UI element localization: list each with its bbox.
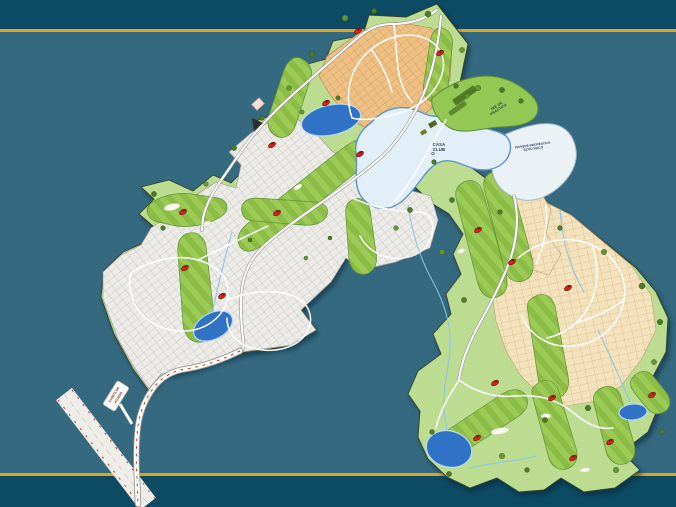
tree-cluster-icon <box>499 453 505 459</box>
tree-cluster-icon <box>407 207 412 212</box>
master-plan-map: CASETA DE ACCESO CASA CLUB TEE DE PRACTI… <box>0 0 676 507</box>
tree-cluster-icon <box>639 283 645 289</box>
tree-cluster-icon <box>394 226 399 231</box>
tree-cluster-icon <box>657 319 663 325</box>
tree-cluster-icon <box>446 471 451 476</box>
tree-cluster-icon <box>161 226 166 231</box>
casa-club-line2: CLUB <box>433 147 446 152</box>
tree-cluster-icon <box>439 249 444 254</box>
tree-cluster-icon <box>613 467 619 473</box>
caseta-sign: CASETA DE ACCESO <box>103 380 130 411</box>
tree-cluster-icon <box>651 359 656 364</box>
tree-cluster-icon <box>519 99 524 104</box>
tree-cluster-icon <box>660 430 665 435</box>
tree-cluster-icon <box>204 182 209 187</box>
tree-cluster-icon <box>304 256 308 260</box>
tree-cluster-icon <box>151 191 156 196</box>
fairway <box>242 198 328 225</box>
tree-cluster-icon <box>498 210 503 215</box>
tree-cluster-icon <box>342 15 348 21</box>
tree-cluster-icon <box>601 249 607 255</box>
tree-cluster-icon <box>432 160 437 165</box>
caseta-sign-stem <box>120 404 132 424</box>
tree-cluster-icon <box>328 236 332 240</box>
tree-cluster-icon <box>461 297 466 302</box>
tree-cluster-icon <box>475 85 481 91</box>
tree-cluster-icon <box>248 238 252 242</box>
tree-cluster-icon <box>558 226 563 231</box>
tree-cluster-icon <box>286 85 291 90</box>
tree-cluster-icon <box>425 11 431 17</box>
tree-cluster-icon <box>499 87 504 92</box>
tree-cluster-icon <box>449 197 454 202</box>
tree-cluster-icon <box>525 468 530 473</box>
tree-cluster-icon <box>430 430 435 435</box>
tree-cluster-icon <box>231 145 236 150</box>
clubhouse-dot-icon <box>432 152 435 155</box>
tree-cluster-icon <box>585 405 591 411</box>
tree-cluster-icon <box>454 84 459 89</box>
tree-cluster-icon <box>260 116 265 121</box>
tree-cluster-icon <box>465 94 469 98</box>
tree-cluster-icon <box>300 110 304 114</box>
tree-cluster-icon <box>336 96 340 100</box>
tree-cluster-icon <box>371 8 376 13</box>
tree-cluster-icon <box>459 47 464 52</box>
gatehouse <box>252 98 265 111</box>
tree-cluster-icon <box>542 417 547 422</box>
tree-cluster-icon <box>309 51 315 57</box>
